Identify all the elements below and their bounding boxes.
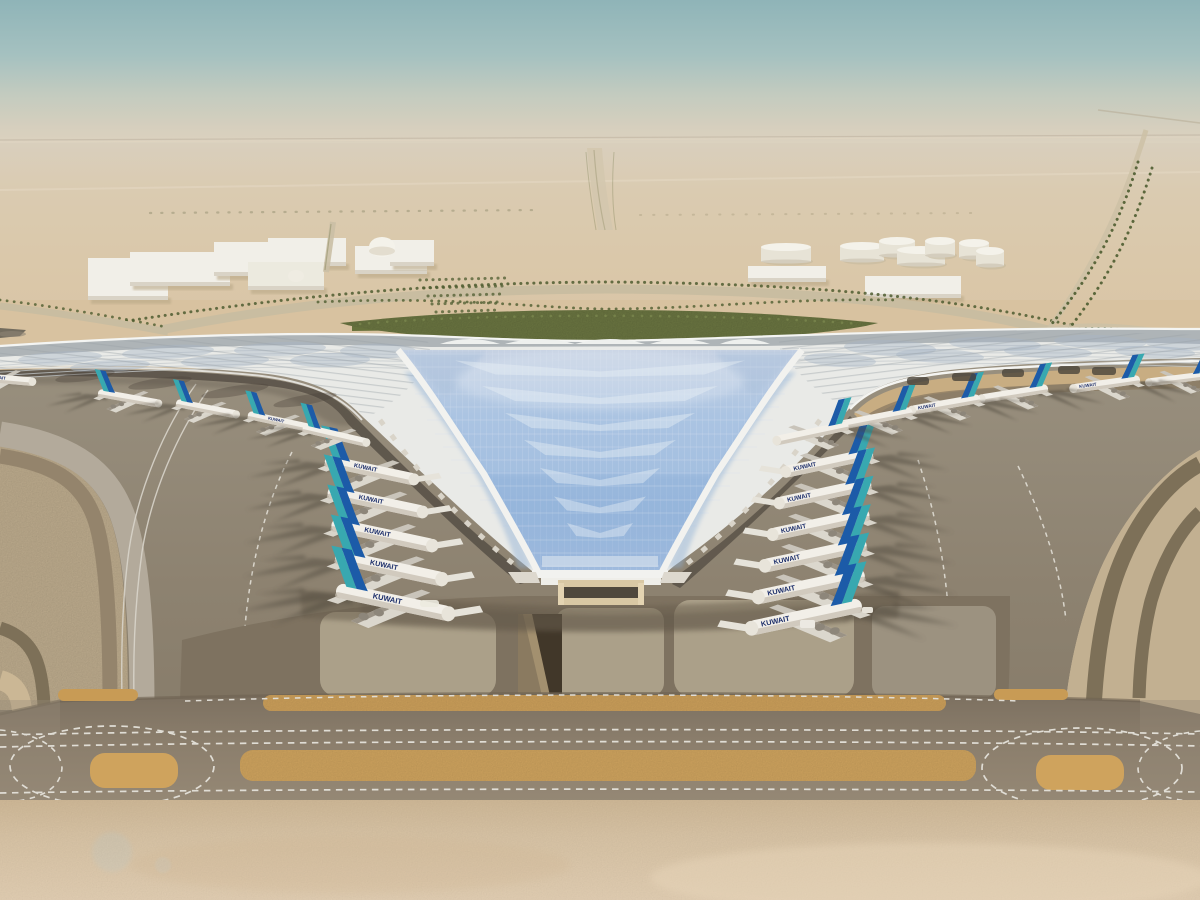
svg-text:KUWAIT: KUWAIT: [0, 374, 6, 380]
